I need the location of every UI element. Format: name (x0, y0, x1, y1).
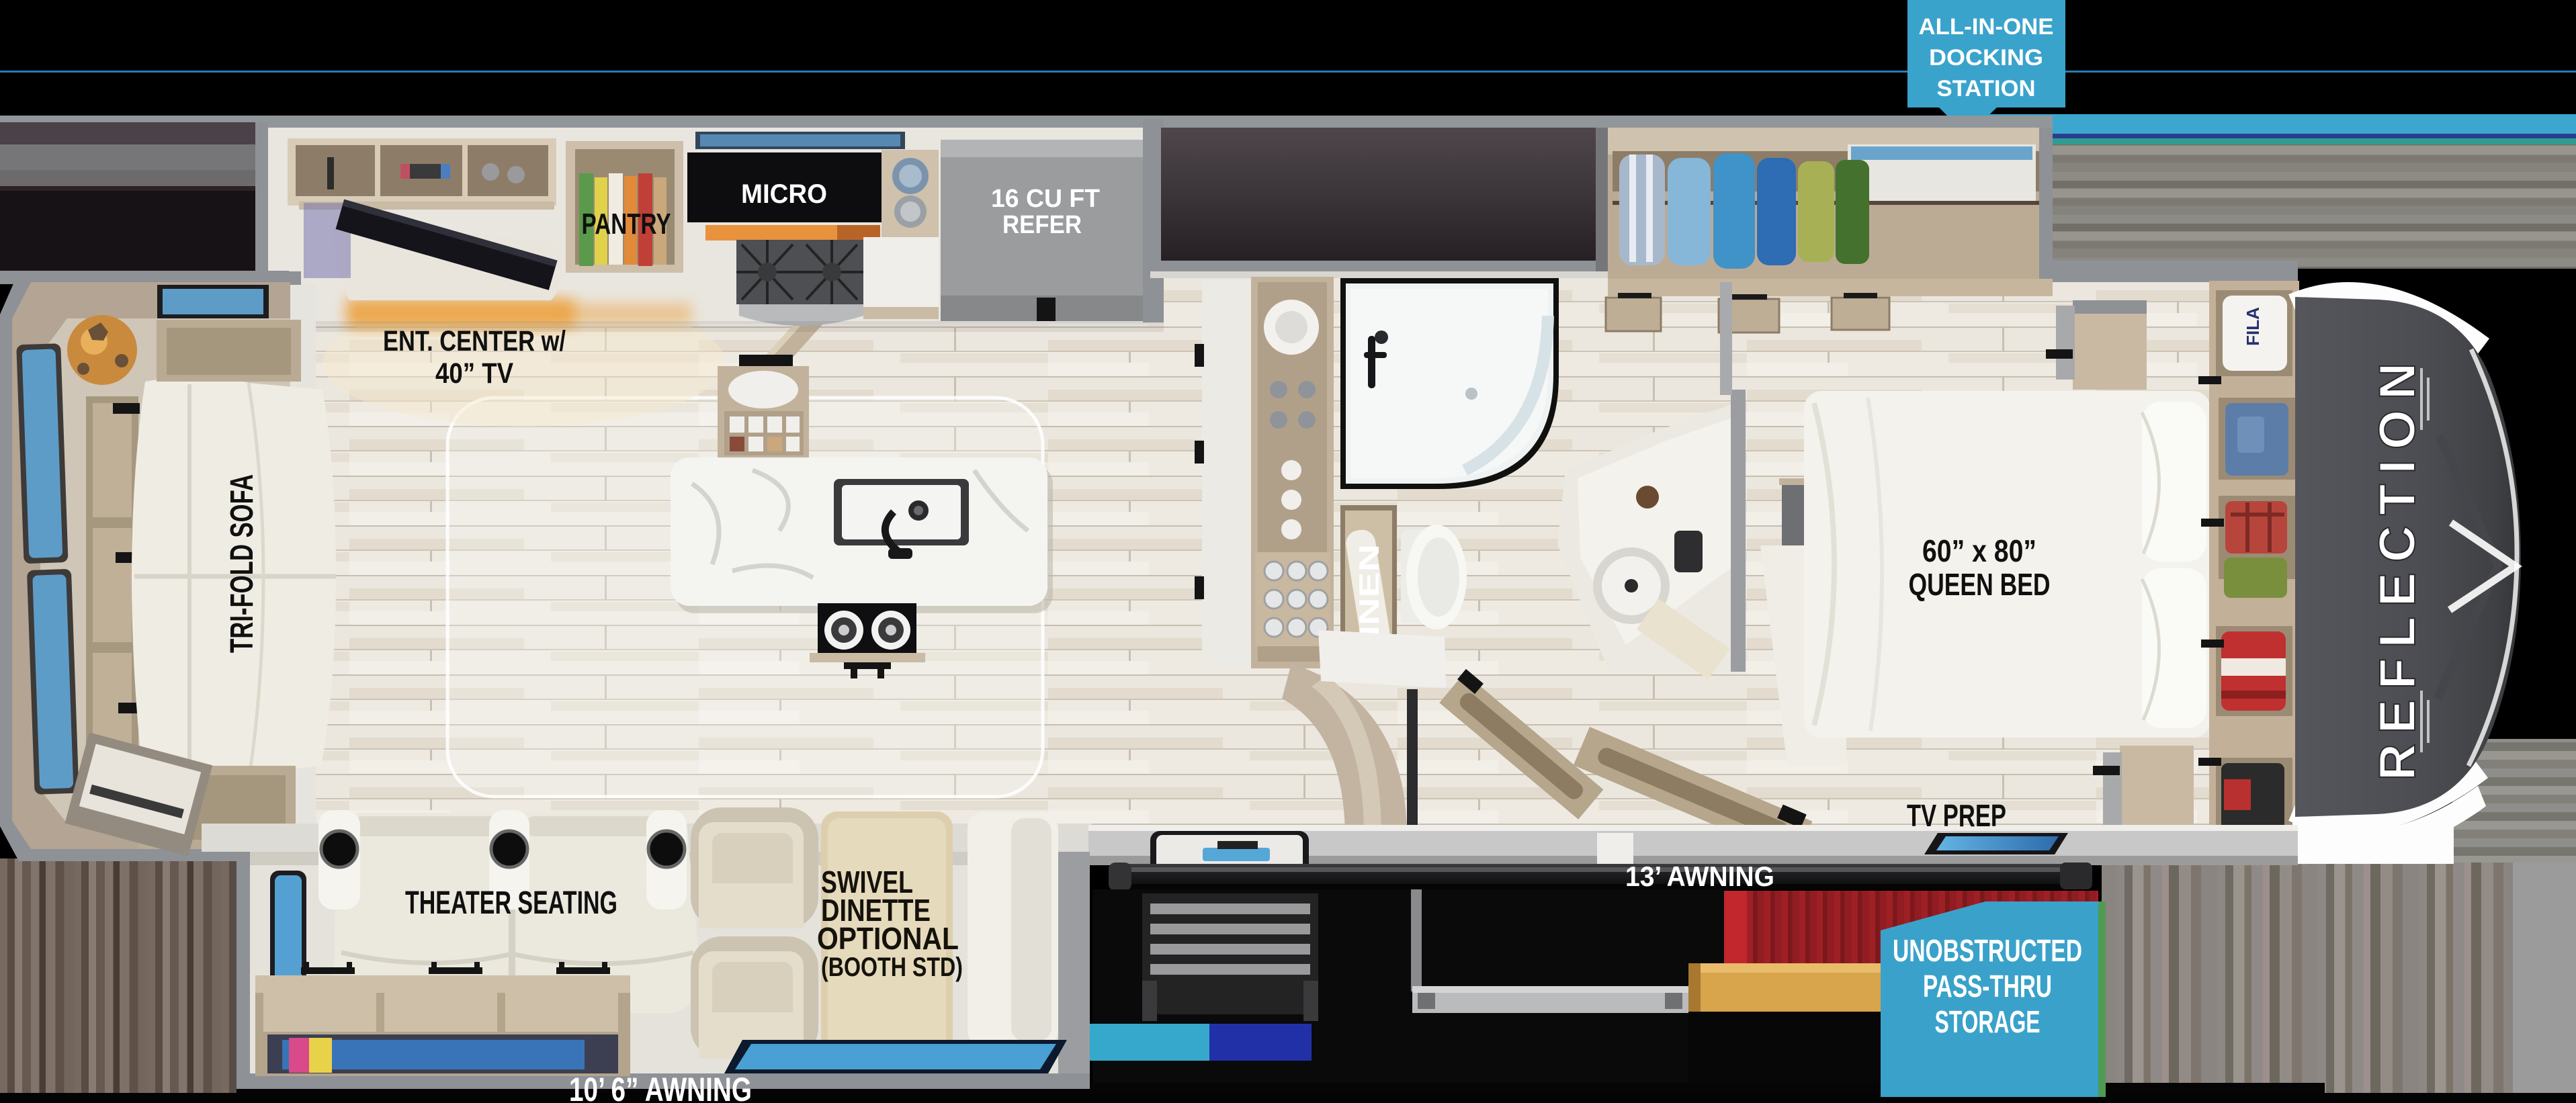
svg-text:13’ AWNING: 13’ AWNING (1625, 861, 1774, 892)
svg-text:(BOOTH STD): (BOOTH STD) (821, 953, 963, 982)
svg-text:TRI-FOLD SOFA: TRI-FOLD SOFA (224, 474, 260, 653)
svg-text:40” TV: 40” TV (435, 357, 513, 390)
svg-text:PANTRY: PANTRY (582, 208, 671, 240)
svg-text:DOCKING: DOCKING (1929, 45, 2043, 71)
svg-text:THEATER SEATING: THEATER SEATING (405, 885, 617, 921)
svg-text:QUEEN BED: QUEEN BED (1909, 567, 2051, 602)
svg-text:TV PREP: TV PREP (1907, 798, 2006, 833)
svg-text:REFER: REFER (1002, 211, 1082, 239)
svg-text:FILA: FILA (2243, 307, 2263, 346)
svg-text:STATION: STATION (1937, 76, 2036, 101)
svg-text:16 CU FT: 16 CU FT (991, 185, 1100, 213)
svg-text:60” x 80”: 60” x 80” (1922, 533, 2036, 568)
svg-text:10’ 6” AWNING: 10’ 6” AWNING (569, 1071, 752, 1103)
svg-text:STORAGE: STORAGE (1935, 1004, 2041, 1039)
svg-text:MICRO: MICRO (741, 179, 827, 209)
svg-text:OPTIONAL: OPTIONAL (817, 921, 959, 956)
svg-text:PASS-THRU: PASS-THRU (1923, 969, 2052, 1004)
svg-text:UNOBSTRUCTED: UNOBSTRUCTED (1893, 933, 2082, 968)
svg-text:REFLECTION: REFLECTION (2369, 359, 2426, 781)
svg-text:ALL-IN-ONE: ALL-IN-ONE (1919, 14, 2054, 40)
